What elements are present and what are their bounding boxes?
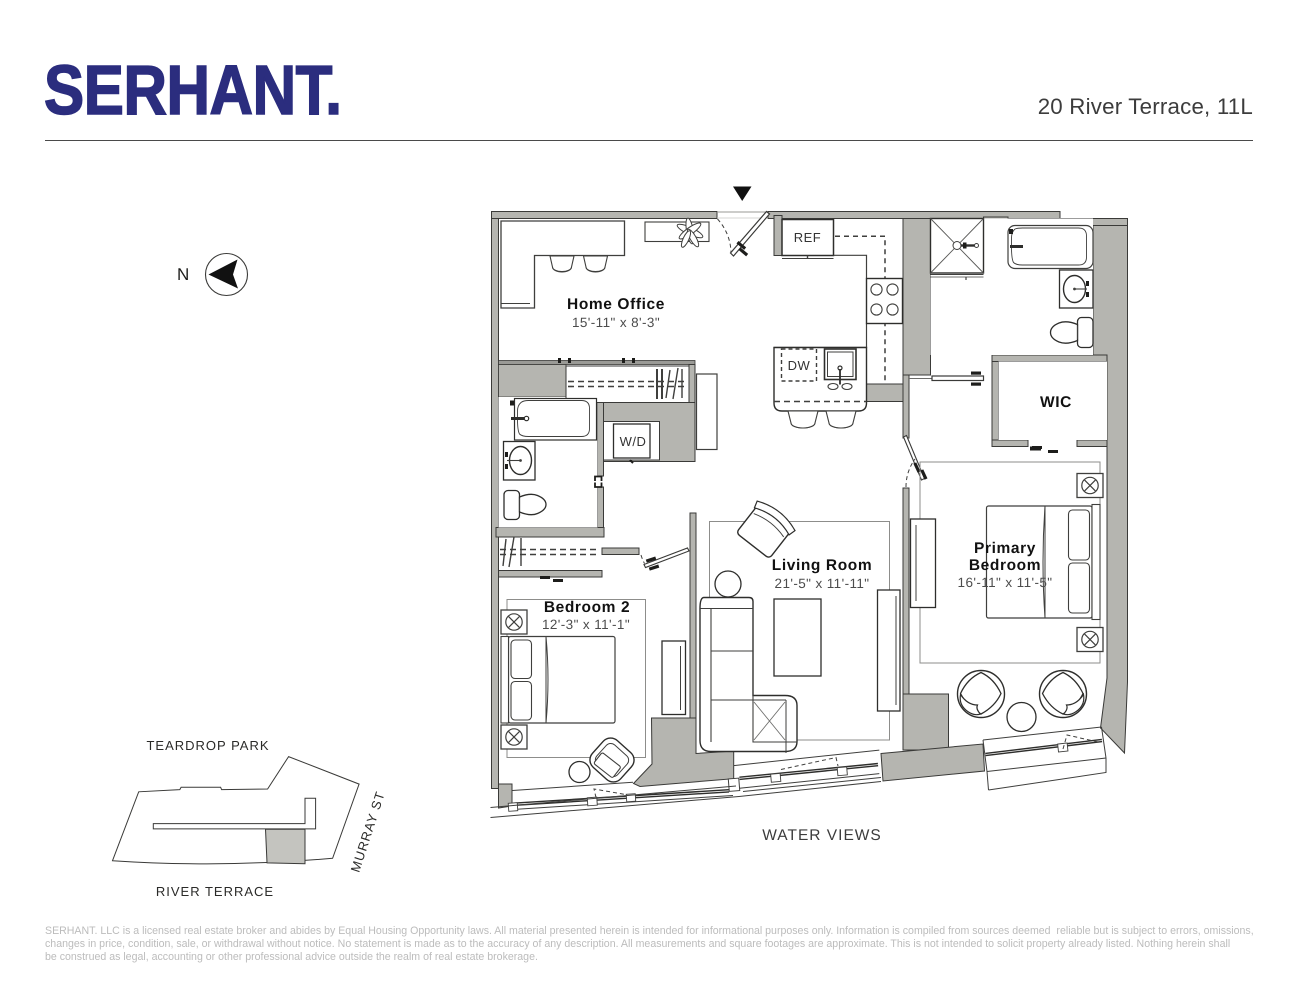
svg-text:TEARDROP PARK: TEARDROP PARK: [146, 738, 269, 753]
svg-text:21'-5" x 11'-11": 21'-5" x 11'-11": [775, 576, 870, 591]
svg-text:DW: DW: [788, 358, 811, 373]
svg-text:Home Office: Home Office: [567, 296, 665, 313]
svg-text:Living Room: Living Room: [772, 557, 872, 574]
svg-text:N: N: [177, 265, 189, 284]
svg-text:WATER VIEWS: WATER VIEWS: [762, 827, 882, 844]
svg-text:Primary: Primary: [974, 540, 1036, 557]
svg-text:Bedroom 2: Bedroom 2: [544, 599, 630, 616]
svg-text:Bedroom: Bedroom: [969, 557, 1041, 574]
svg-text:RIVER TERRACE: RIVER TERRACE: [156, 884, 274, 899]
svg-text:12'-3" x 11'-1": 12'-3" x 11'-1": [542, 617, 630, 632]
svg-text:WIC: WIC: [1040, 394, 1072, 411]
svg-text:16'-11" x 11'-5": 16'-11" x 11'-5": [958, 575, 1053, 590]
svg-text:W/D: W/D: [620, 434, 647, 449]
svg-text:REF: REF: [794, 230, 822, 245]
svg-text:15'-11" x 8'-3": 15'-11" x 8'-3": [572, 315, 660, 330]
svg-text:MURRAY ST: MURRAY ST: [348, 789, 388, 874]
